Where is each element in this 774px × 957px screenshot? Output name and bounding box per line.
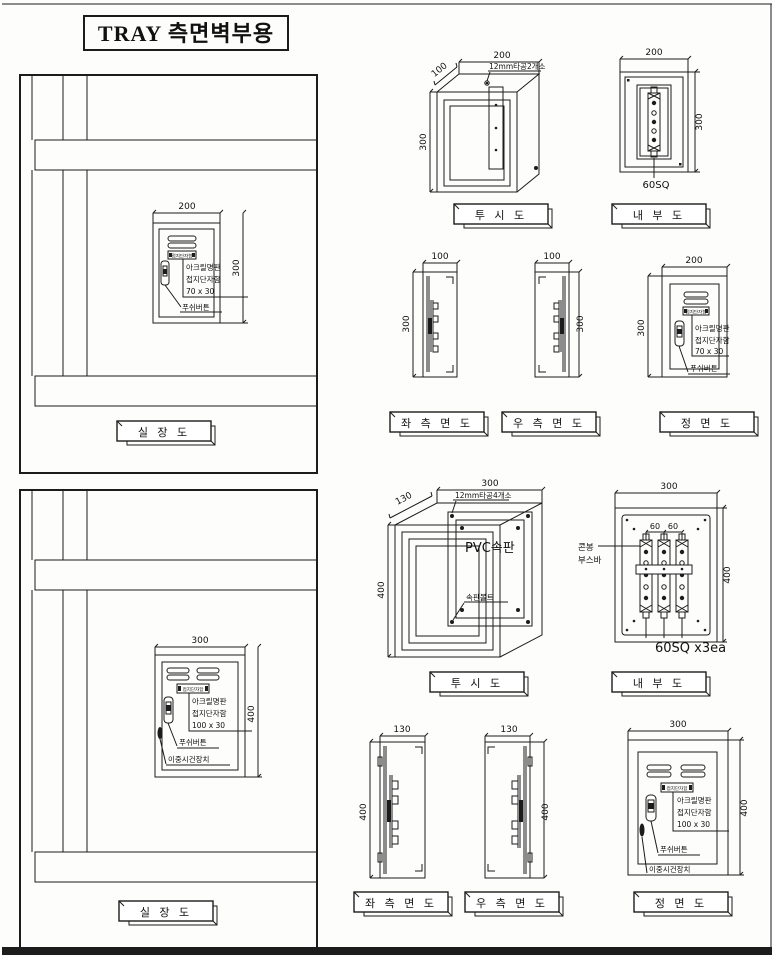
svg-text:접지단자함: 접지단자함 xyxy=(667,785,688,792)
dim-130: 130 xyxy=(394,491,414,508)
caption-internal-large: 내 부 도 xyxy=(612,672,710,696)
installation-drawing-top: 200 300 접지단자함 아크릴명판 접지단자함 70 x 30 푸쉬버튼 xyxy=(20,75,317,473)
dim-300: 300 xyxy=(660,482,677,492)
busbar-note: 부스바 xyxy=(578,555,602,566)
push-button xyxy=(164,697,173,723)
drill-note: 12mm타공2개소 xyxy=(489,61,546,71)
dim-400: 400 xyxy=(740,799,750,816)
dim-400: 400 xyxy=(541,803,551,820)
mounted-box-small: 200 300 접지단자함 아크릴명판 접지단자함 70 x 30 푸쉬버튼 xyxy=(153,202,248,323)
panel-bracket xyxy=(512,775,523,848)
push-button xyxy=(161,261,169,285)
lock xyxy=(640,824,645,837)
concrete-slab xyxy=(35,560,317,590)
caption-left-side-small: 좌 측 면 도 xyxy=(390,412,488,436)
double-lock-label: 이중시건장치 xyxy=(649,864,690,874)
caption-installation-bottom: 실 장 도 xyxy=(119,901,217,925)
busbar-note: 콘봉 xyxy=(578,543,594,553)
caption-internal-small: 내 부 도 xyxy=(612,204,710,228)
view-internal-small: 200 300 60SQ 내 부 도 xyxy=(612,48,710,228)
view-perspective-small: 200 100 300 12mm타공2개소 투 시 도 xyxy=(419,51,552,228)
concrete-slab xyxy=(35,140,317,170)
push-button-label: 푸쉬버튼 xyxy=(660,844,688,854)
acrylic-note: 아크릴명판 xyxy=(186,262,221,272)
push-button-label: 푸쉬버튼 xyxy=(179,737,207,747)
caption-perspective-large: 투 시 도 xyxy=(430,672,528,696)
view-internal-large: 300 400 60 60 xyxy=(578,482,733,696)
dim-300: 300 xyxy=(191,636,208,646)
dim-400: 400 xyxy=(359,803,369,820)
dim-400: 400 xyxy=(723,566,733,583)
caption-left-side-large: 좌 측 면 도 xyxy=(354,892,452,916)
svg-text:접지단자함: 접지단자함 xyxy=(183,686,204,693)
push-button xyxy=(675,321,684,346)
busbar xyxy=(648,87,660,157)
dim-400: 400 xyxy=(247,705,257,722)
dim-300: 300 xyxy=(669,720,686,730)
acrylic-note: 접지단자함 xyxy=(677,807,712,817)
push-button-label: 푸쉬버튼 xyxy=(690,363,718,373)
wall-section xyxy=(32,490,317,882)
acrylic-note: 접지단자함 xyxy=(192,708,227,718)
acrylic-note: 100 x 30 xyxy=(192,721,225,730)
svg-text:내 부 도: 내 부 도 xyxy=(633,677,685,690)
svg-text:우 측 면 도: 우 측 면 도 xyxy=(476,897,548,910)
dim-200: 200 xyxy=(178,202,195,212)
caption-front-small: 정 면 도 xyxy=(660,412,758,436)
busbar-size: 60SQ xyxy=(643,180,670,191)
dim-300: 300 xyxy=(576,315,586,332)
panel-bracket xyxy=(387,775,398,848)
dim-60: 60 xyxy=(668,522,678,531)
mounted-box-large: 300 400 접지단자함 아크릴명판 접지단자함 xyxy=(155,636,262,777)
dim-300: 300 xyxy=(232,259,242,276)
nameplate-tag: 접지단자함 xyxy=(177,684,209,693)
svg-text:좌 측 면 도: 좌 측 면 도 xyxy=(401,417,473,430)
dim-300: 300 xyxy=(637,319,647,336)
busbar-assembly xyxy=(636,534,692,618)
svg-text:우 측 면 도: 우 측 면 도 xyxy=(513,417,585,430)
caption-right-side-large: 우 측 면 도 xyxy=(465,892,563,916)
concrete-slab xyxy=(35,852,317,882)
view-left-side-small: 100 300 좌 측 면 도 xyxy=(390,252,488,436)
page-title: TRAY 측면벽부용 xyxy=(98,21,274,46)
caption-right-side-small: 우 측 면 도 xyxy=(502,412,600,436)
svg-text:실 장 도: 실 장 도 xyxy=(140,906,192,919)
acrylic-note: 아크릴명판 xyxy=(695,323,730,333)
view-right-side-large: 130 400 우 측 면 도 xyxy=(465,725,563,916)
view-left-side-large: 130 400 좌 측 면 도 xyxy=(354,725,452,916)
acrylic-note: 70 x 30 xyxy=(695,347,724,356)
panel-bolt-label: 속판볼트 xyxy=(466,593,494,602)
dim-130: 130 xyxy=(500,725,517,735)
busbar-size-label: 60SQ x3ea xyxy=(655,641,726,656)
acrylic-note: 접지단자함 xyxy=(695,335,730,345)
title-box: TRAY 측면벽부용 xyxy=(84,16,288,50)
svg-text:정 면 도: 정 면 도 xyxy=(655,897,707,910)
svg-text:투 시 도: 투 시 도 xyxy=(451,677,503,690)
dim-400: 400 xyxy=(377,581,387,598)
acrylic-note: 접지단자함 xyxy=(186,274,221,284)
view-front-large: 300 400 접지단자함 아크릴명판 접지단자함 100 x 30 푸쉬버튼 … xyxy=(628,720,750,916)
dim-100: 100 xyxy=(430,61,450,80)
push-button xyxy=(646,795,656,821)
drill-note: 12mm타공4개소 xyxy=(455,490,512,500)
svg-text:투 시 도: 투 시 도 xyxy=(475,209,527,222)
dim-60: 60 xyxy=(650,522,660,531)
nameplate-tag: 접지단자함 xyxy=(683,307,709,316)
dim-300: 300 xyxy=(402,315,412,332)
nameplate-tag: 접지단자함 xyxy=(661,783,693,792)
dim-200: 200 xyxy=(493,51,510,61)
view-perspective-large: 300 130 400 12mm타공4개소 PVC속판 속판볼트 투 시 도 xyxy=(377,479,545,696)
open-door-panel xyxy=(489,87,503,169)
acrylic-note: 70 x 30 xyxy=(186,287,215,296)
pvc-panel-label: PVC속판 xyxy=(465,541,515,556)
acrylic-note: 아크릴명판 xyxy=(677,795,712,805)
svg-text:접지단자함: 접지단자함 xyxy=(686,309,707,316)
dim-100: 100 xyxy=(543,252,560,262)
dim-300: 300 xyxy=(419,133,429,150)
dim-100: 100 xyxy=(431,252,448,262)
dim-200: 200 xyxy=(645,48,662,58)
nameplate-tag: 접지단자함 xyxy=(168,251,196,260)
caption-installation-top: 실 장 도 xyxy=(117,421,215,445)
view-front-small: 200 300 접지단자함 아크릴명판 접지단자함 70 x 30 푸쉬버튼 정… xyxy=(637,256,758,436)
caption-perspective-small: 투 시 도 xyxy=(454,204,552,228)
lock xyxy=(158,727,163,739)
view-right-side-small: 100 300 우 측 면 도 xyxy=(502,252,600,436)
double-lock-label: 이중시건장치 xyxy=(168,754,209,764)
dim-300: 300 xyxy=(695,113,705,130)
svg-text:실 장 도: 실 장 도 xyxy=(138,426,190,439)
svg-text:내 부 도: 내 부 도 xyxy=(633,209,685,222)
svg-text:좌 측 면 도: 좌 측 면 도 xyxy=(365,897,437,910)
installation-drawing-bottom: 300 400 접지단자함 아크릴명판 접지단자함 xyxy=(20,490,317,950)
svg-text:접지단자함: 접지단자함 xyxy=(172,253,193,260)
acrylic-note: 아크릴명판 xyxy=(192,696,227,706)
concrete-slab xyxy=(35,376,317,406)
drawing-sheet: TRAY 측면벽부용 200 300 접지단자함 xyxy=(0,0,774,957)
dim-300: 300 xyxy=(481,479,498,489)
dim-200: 200 xyxy=(685,256,702,266)
acrylic-note: 100 x 30 xyxy=(677,820,710,829)
svg-text:정 면 도: 정 면 도 xyxy=(681,417,733,430)
dim-130: 130 xyxy=(393,725,410,735)
push-button-label: 푸쉬버튼 xyxy=(182,302,210,312)
caption-front-large: 정 면 도 xyxy=(634,892,732,916)
